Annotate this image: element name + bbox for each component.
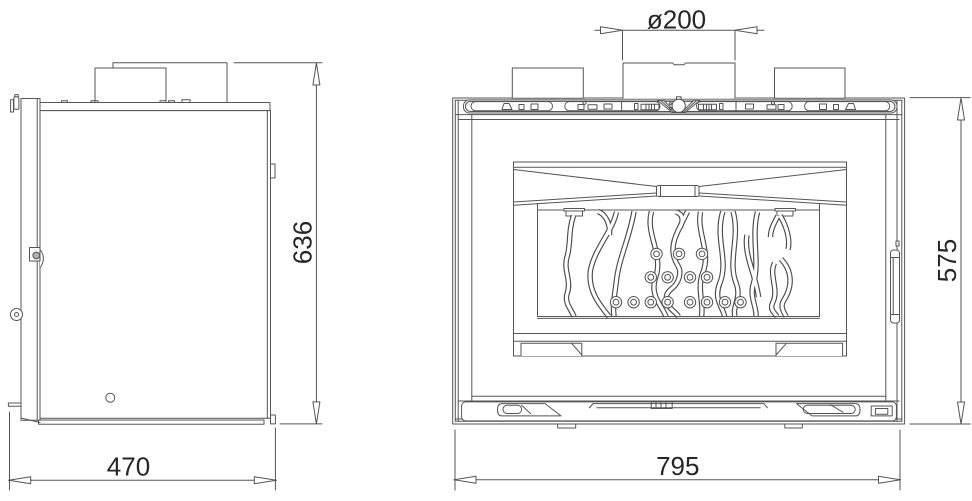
svg-text:636: 636: [288, 221, 318, 264]
svg-text:575: 575: [932, 239, 962, 282]
svg-text:ø200: ø200: [647, 5, 706, 35]
svg-text:795: 795: [656, 451, 699, 481]
svg-text:470: 470: [107, 452, 150, 482]
